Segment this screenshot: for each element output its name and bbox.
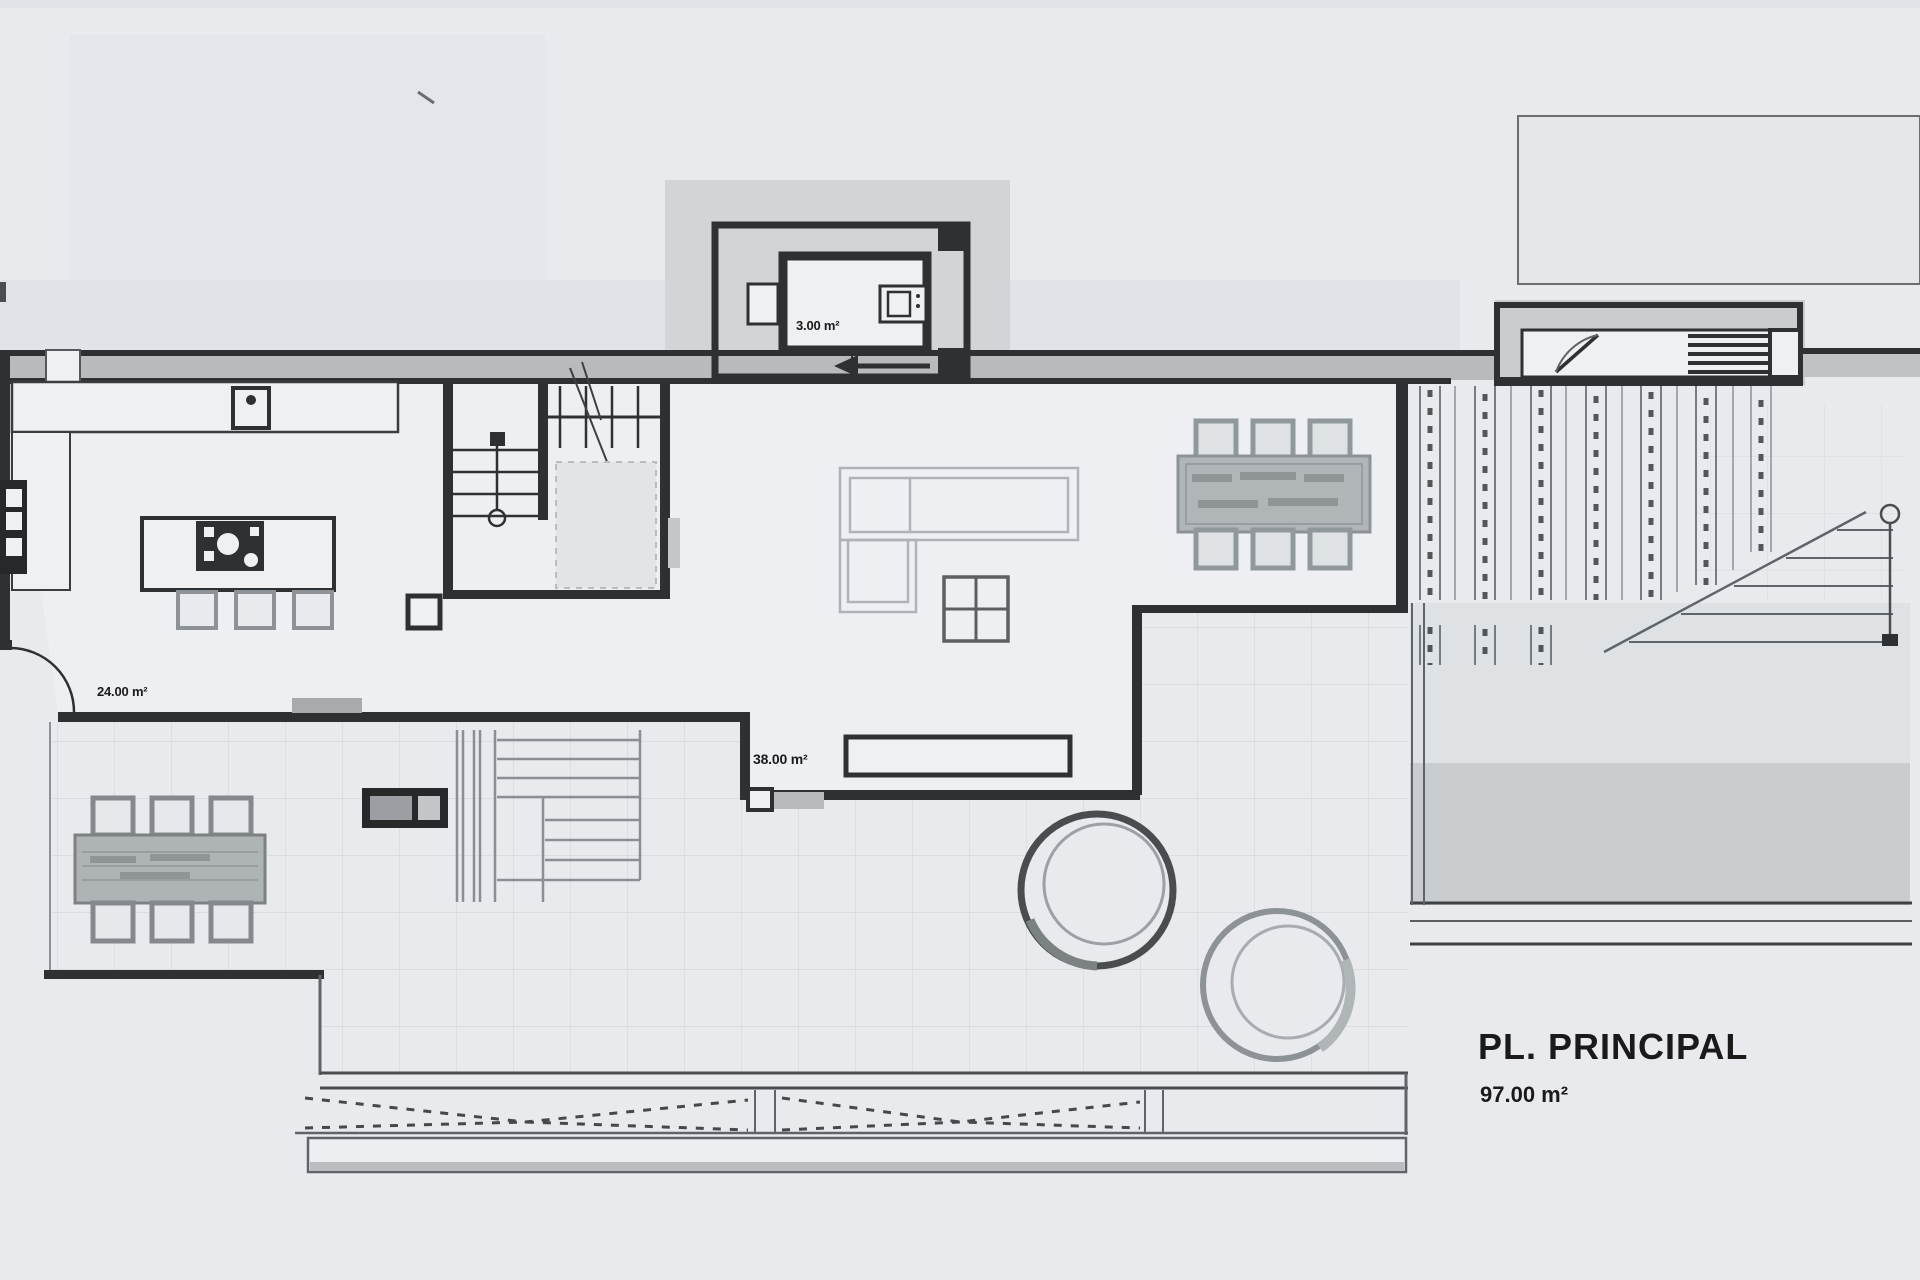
slope-lower-right xyxy=(1410,603,1912,944)
low-bench xyxy=(846,737,1070,775)
cabinet-on-wall xyxy=(292,698,362,713)
floor-title: PL. PRINCIPAL xyxy=(1478,1026,1748,1068)
outdoor-chairs-top xyxy=(93,798,251,835)
outdoor-chairs-bottom xyxy=(93,903,251,941)
bbq-block xyxy=(362,788,448,828)
exterior-grey-patches xyxy=(0,0,1920,385)
oven-column xyxy=(0,480,27,574)
roof-projection-dashes xyxy=(305,1098,1140,1130)
kitchen-counter xyxy=(12,382,398,432)
wc-toilet xyxy=(880,286,926,322)
pier-column xyxy=(748,789,772,810)
dining-table xyxy=(1178,456,1370,532)
kitchen-sink xyxy=(233,388,269,428)
planter-1 xyxy=(1021,814,1173,966)
kitchen-area-label: 24.00 m² xyxy=(97,684,147,699)
living-area-label: 38.00 m² xyxy=(753,751,807,767)
wc-area-label: 3.00 m² xyxy=(796,318,839,333)
outdoor-dining-set xyxy=(75,798,265,941)
kitchen-island xyxy=(142,518,334,590)
lower-step xyxy=(308,1138,1406,1172)
wc-sink xyxy=(748,284,778,324)
window-top-left xyxy=(46,350,80,384)
floor-plan-page: 3.00 m² 24.00 m² 38.00 m² PL. PRINCIPAL … xyxy=(0,0,1920,1280)
planter-2 xyxy=(1203,911,1351,1059)
island-stools xyxy=(178,592,332,628)
outdoor-table xyxy=(75,835,265,903)
dining-chairs-bottom xyxy=(1196,530,1350,568)
dining-set-interior xyxy=(1178,421,1370,568)
stair-pier xyxy=(408,596,440,628)
floor-area-label: 97.00 m² xyxy=(1480,1082,1568,1108)
projection-dividers xyxy=(755,1090,1163,1133)
dining-chairs-top xyxy=(1196,421,1350,457)
floor-plan-drawing xyxy=(0,0,1920,1280)
stair-void xyxy=(556,462,656,588)
